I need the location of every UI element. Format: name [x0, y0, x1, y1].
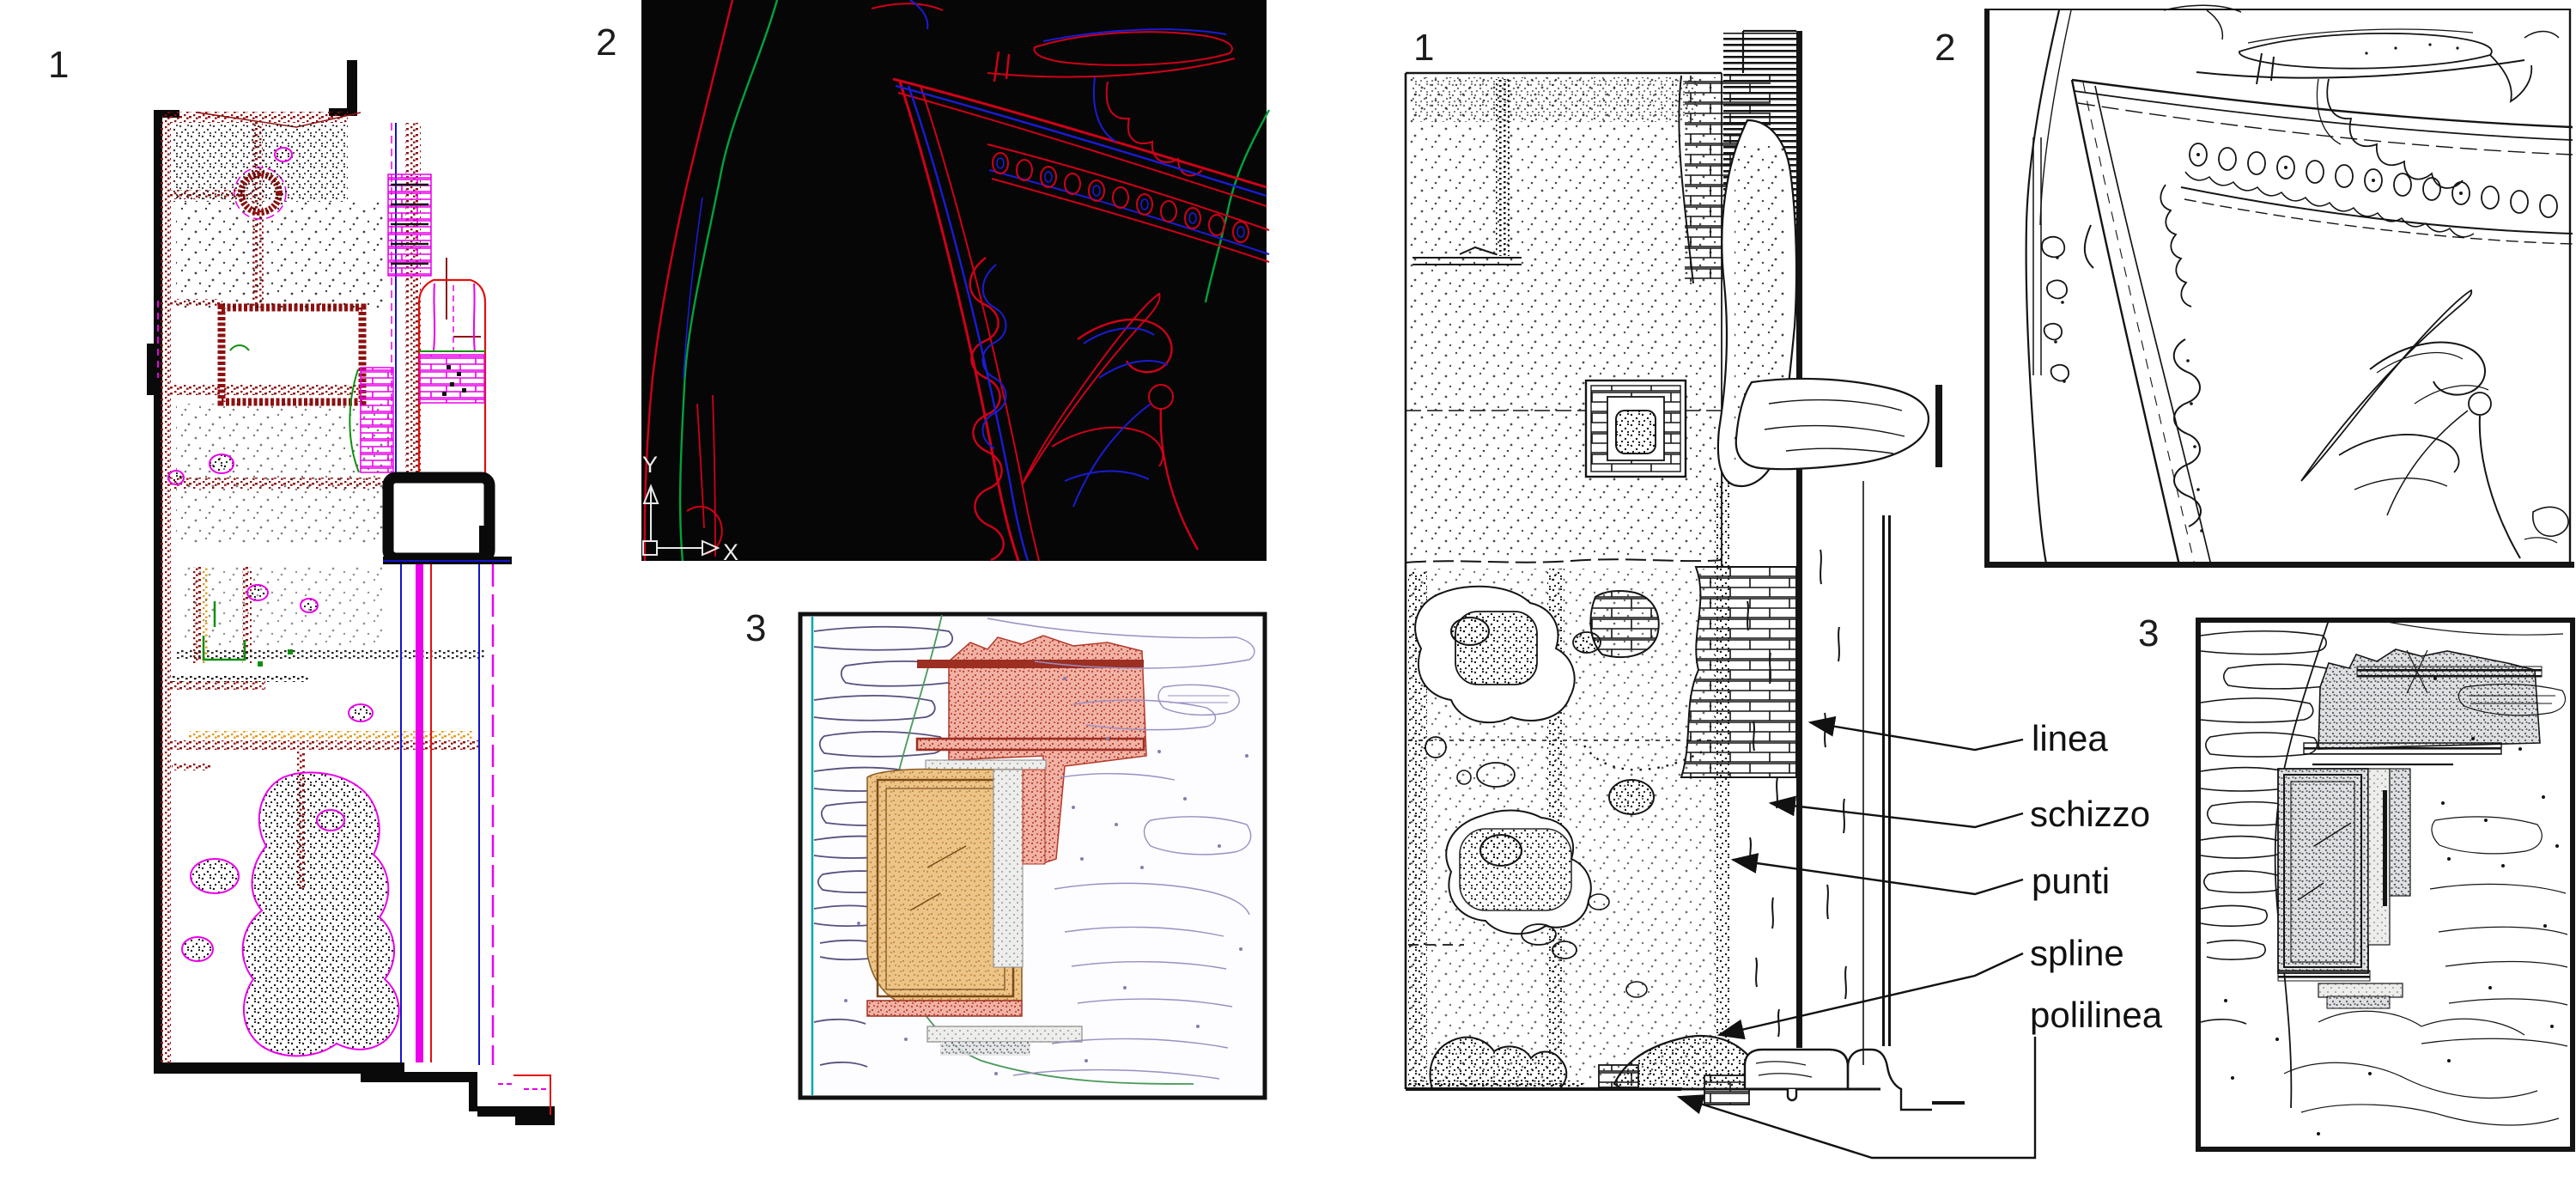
panel-right-2-bw-ornament: 2: [1935, 5, 2574, 568]
leader-schizzo: [1771, 803, 2023, 827]
r2-egg-and-dart: [2185, 143, 2557, 237]
panel-left-1-color-cad-plan: 1: [48, 44, 555, 1125]
panel-left-1-number: 1: [48, 44, 69, 86]
annotation-polilinea: polilinea: [2030, 995, 2163, 1035]
figure-canvas: 1: [0, 0, 2576, 1181]
panel-left-2-autocad-screen: 2: [596, 0, 1269, 565]
annotation-linea: linea: [2032, 718, 2108, 758]
panel-right-1-bw-elevation: 1: [1406, 27, 1965, 1110]
annotation-schizzo: schizzo: [2030, 794, 2150, 834]
panel-left-3-color-render: 3: [745, 607, 1265, 1098]
r2-acanthus: [2301, 290, 2568, 558]
annotation-spline: spline: [2030, 933, 2124, 973]
panel-right-2-number: 2: [1935, 27, 1955, 69]
annotation-labels: linea schizzo punti spline polilinea: [2030, 718, 2163, 1035]
figure-svg: 1: [0, 0, 2576, 1181]
r2-top-ornament: [2164, 5, 2559, 188]
panel-right-3-number: 3: [2138, 612, 2159, 654]
r1-base-moulding: [1431, 1036, 1965, 1110]
panel-left-3-number: 3: [745, 607, 766, 649]
panel-right-1-number: 1: [1413, 27, 1434, 69]
leader-punti: [1733, 860, 2023, 894]
ucs-x-label: X: [723, 539, 738, 565]
r2-cornice-band: [2072, 80, 2573, 244]
r2-wall-edge: [2026, 10, 2093, 563]
annotation-punti: punti: [2032, 861, 2110, 901]
panel-left-2-number: 2: [596, 21, 617, 64]
leader-spline: [1719, 953, 2023, 1035]
r1-wall-stipple: [1408, 77, 1730, 1088]
ucs-y-label: Y: [642, 452, 658, 478]
r2-frame: [1984, 9, 2574, 568]
panel-right-3-bw-render: 3: [2138, 612, 2573, 1149]
leader-linea: [1810, 722, 2023, 750]
